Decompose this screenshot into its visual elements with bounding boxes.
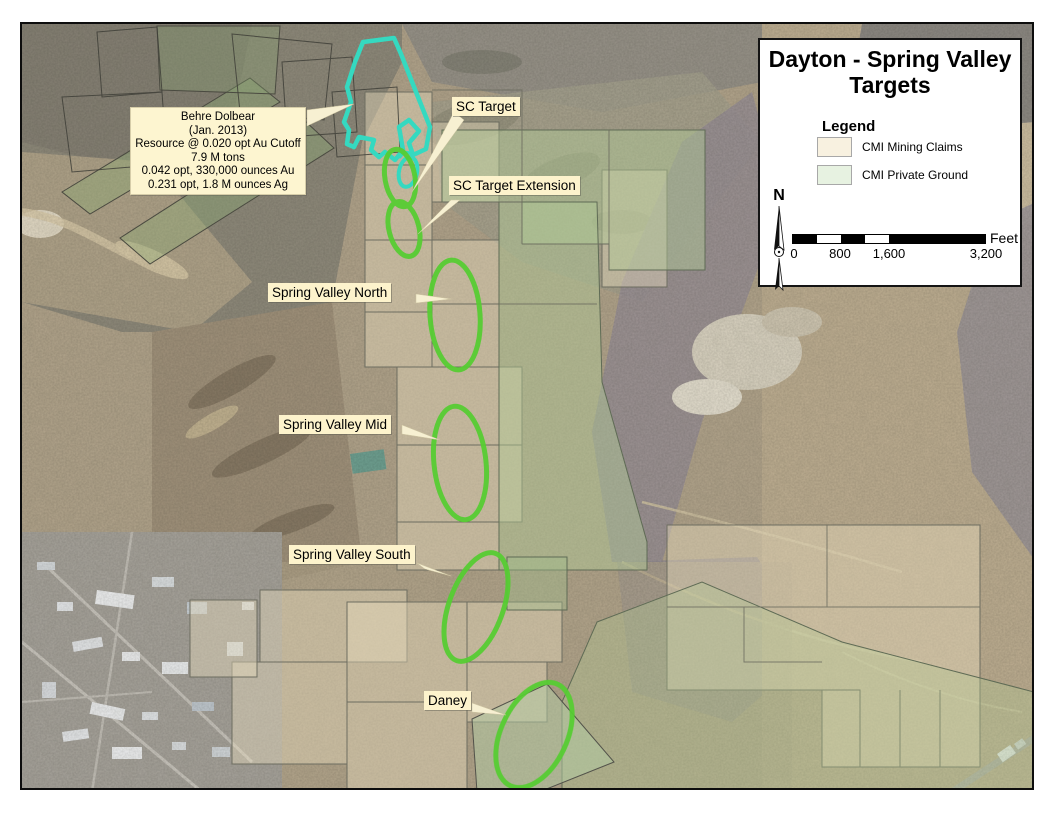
callout-line: 7.9 M tons [131,152,305,166]
north-arrow: N [766,188,792,297]
scale-unit: Feet [990,230,1018,246]
callout-line: (Jan. 2013) [131,125,305,139]
title-legend-box: Dayton - Spring Valley Targets Legend CM… [758,38,1022,287]
label-spring-valley-mid: Spring Valley Mid [279,415,391,434]
resource-callout: Behre Dolbear (Jan. 2013) Resource @ 0.0… [130,107,306,195]
scale-bar-graphic [792,234,986,244]
scale-tick: 800 [829,246,851,261]
legend-item-mining-claims: CMI Mining Claims [817,136,963,158]
map-title: Dayton - Spring Valley Targets [764,46,1016,98]
label-sc-target-extension: SC Target Extension [449,176,580,195]
scale-ticks: 0 800 1,600 3,200 [792,246,986,262]
north-arrow-icon [767,204,791,292]
legend-heading: Legend [822,118,875,135]
label-sc-target: SC Target [452,97,520,116]
label-spring-valley-south: Spring Valley South [289,545,415,564]
scale-tick: 0 [790,246,797,261]
label-spring-valley-north: Spring Valley North [268,283,391,302]
callout-line: Resource @ 0.020 opt Au Cutoff [131,138,305,152]
callout-line: 0.042 opt, 330,000 ounces Au [131,165,305,179]
private-ground-swatch [817,165,852,185]
legend-item-label: CMI Private Ground [862,168,968,182]
scale-tick: 3,200 [970,246,1003,261]
page: { "page_title": "Dayton - Spring Valley … [0,0,1056,816]
scale-tick: 1,600 [873,246,906,261]
legend-item-private-ground: CMI Private Ground [817,164,968,186]
legend-item-label: CMI Mining Claims [862,140,963,154]
callout-line: Behre Dolbear [131,111,305,125]
label-daney: Daney [424,691,471,710]
north-label: N [766,188,792,204]
callout-line: 0.231 opt, 1.8 M ounces Ag [131,179,305,193]
mining-claims-swatch [817,137,852,157]
